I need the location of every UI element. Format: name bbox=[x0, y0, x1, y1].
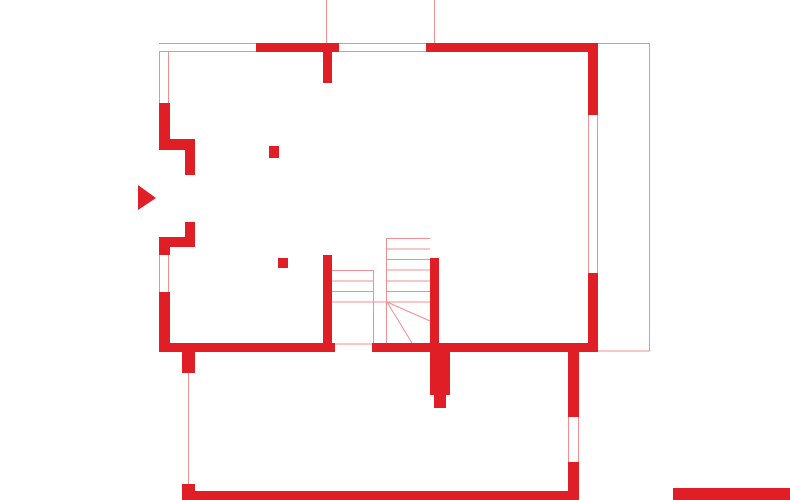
stair-break-line-2 bbox=[387, 302, 412, 343]
window-basement-right bbox=[568, 417, 579, 462]
column-1 bbox=[269, 146, 279, 158]
window-top-middle bbox=[339, 43, 426, 52]
column-2 bbox=[278, 258, 288, 268]
right-wall-upper bbox=[588, 43, 598, 115]
entrance-arrow bbox=[138, 185, 156, 210]
entry-jog-upper bbox=[159, 139, 195, 150]
neighbor-wall-fragment bbox=[673, 488, 790, 500]
left-wall-middle bbox=[159, 237, 170, 255]
window-left-upper bbox=[159, 52, 169, 103]
left-wall-upper bbox=[159, 103, 170, 143]
basement-bottom-wall bbox=[193, 491, 578, 500]
window-right bbox=[588, 115, 598, 273]
plan-linework bbox=[0, 0, 790, 500]
top-wall-segment-b bbox=[426, 43, 598, 52]
window-left-lower bbox=[159, 255, 169, 292]
window-top-left bbox=[159, 43, 256, 52]
chimney-stub bbox=[434, 395, 446, 408]
chimney-base bbox=[430, 343, 450, 395]
stair-wall-right bbox=[430, 258, 439, 343]
stair-wall-left bbox=[323, 255, 332, 343]
basement-pier-upper bbox=[182, 352, 195, 373]
basement-right-wall-upper bbox=[568, 352, 579, 417]
floor-plan-canvas bbox=[0, 0, 790, 500]
bottom-wall-right bbox=[372, 343, 598, 352]
top-wall-segment-a bbox=[255, 43, 339, 52]
basement-right-wall-lower bbox=[568, 462, 579, 500]
entry-jamb-upper bbox=[185, 150, 195, 175]
stair-break-line-1 bbox=[387, 302, 430, 321]
right-wall-lower bbox=[588, 273, 598, 352]
bottom-wall-left bbox=[159, 343, 335, 352]
top-wall-stub bbox=[323, 52, 332, 83]
